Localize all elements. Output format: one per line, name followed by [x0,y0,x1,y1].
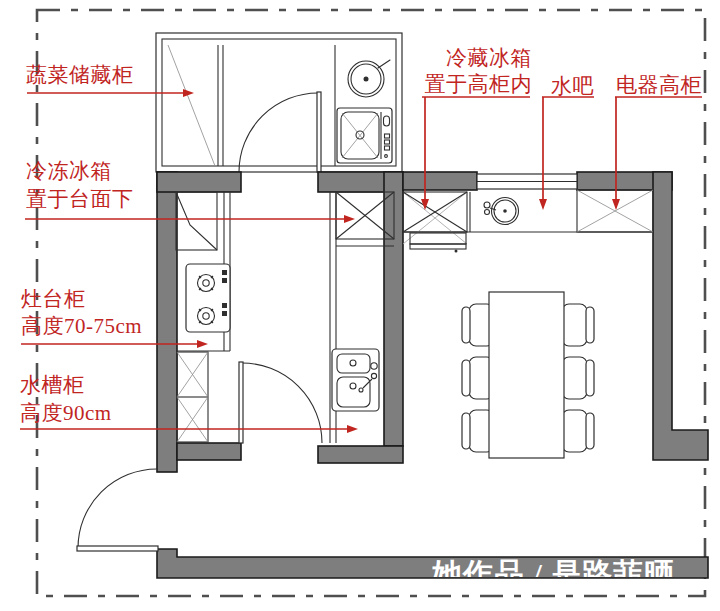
label-freezer-line1: 冷冻冰箱 [26,158,112,185]
label-freezer-line2: 置于台面下 [26,186,134,213]
dining-table [489,292,564,458]
entry-door-leaf [77,546,158,551]
kitchen-top-left-wall [157,172,241,192]
label-sink-cabinet-line1: 水槽柜 [20,372,85,399]
dining-top-left-wall [403,172,477,190]
stove-icon [186,264,230,332]
floor-plan-page: 蔬菜储藏柜 冷冻冰箱 置于台面下 灶台柜 高度70-75cm 水槽柜 高度90c… [0,0,720,611]
leader-fridge [421,97,530,210]
balcony [156,33,402,172]
balcony-door-leaf [317,92,321,172]
washing-machine-icon [337,108,392,163]
corner-counter-unit [176,192,217,250]
kitchen-door [239,362,322,443]
watermark-text: 她作品 / 是路菲晒 [432,559,718,577]
kitchen-sink-icon [332,349,379,411]
chair [562,357,594,399]
chair [562,410,594,452]
kitchen-bottom-left-wall [177,443,241,460]
entry-door [77,469,158,551]
kitchen [176,192,394,443]
appliance-tall-cabinet [577,190,653,232]
label-fridge-line2: 置于高柜内 [420,71,532,98]
watermark-clip: 她作品 / 是路菲晒 [432,559,718,577]
label-fridge-line1: 冷藏冰箱 [420,45,532,72]
kitchen-door-leaf [239,362,243,443]
label-appliance-cabinet: 电器高柜 [616,72,702,99]
kitchen-left-wall [157,172,177,472]
label-stove-line2: 高度70-75cm [21,313,142,340]
kitchen-door-arc [241,363,322,443]
entry-door-arc [78,469,157,548]
label-vegetable-cabinet: 蔬菜储藏柜 [26,62,134,89]
label-sink-cabinet-line2: 高度90cm [20,400,112,427]
floor-plan-drawing [0,0,720,611]
chair [562,304,594,346]
window [477,174,577,189]
label-stove-line1: 灶台柜 [21,286,86,313]
kitchen-bottom-right-wall [318,446,403,463]
fridge-tall-cabinet [403,192,467,253]
water-bar-sink-icon [484,198,519,225]
leader-stove [21,340,208,348]
dining-right-wall [653,172,708,460]
label-water-bar: 水吧 [551,73,594,100]
dining-area [403,174,653,458]
leader-freezer [25,215,355,223]
leader-water-bar [539,97,594,210]
